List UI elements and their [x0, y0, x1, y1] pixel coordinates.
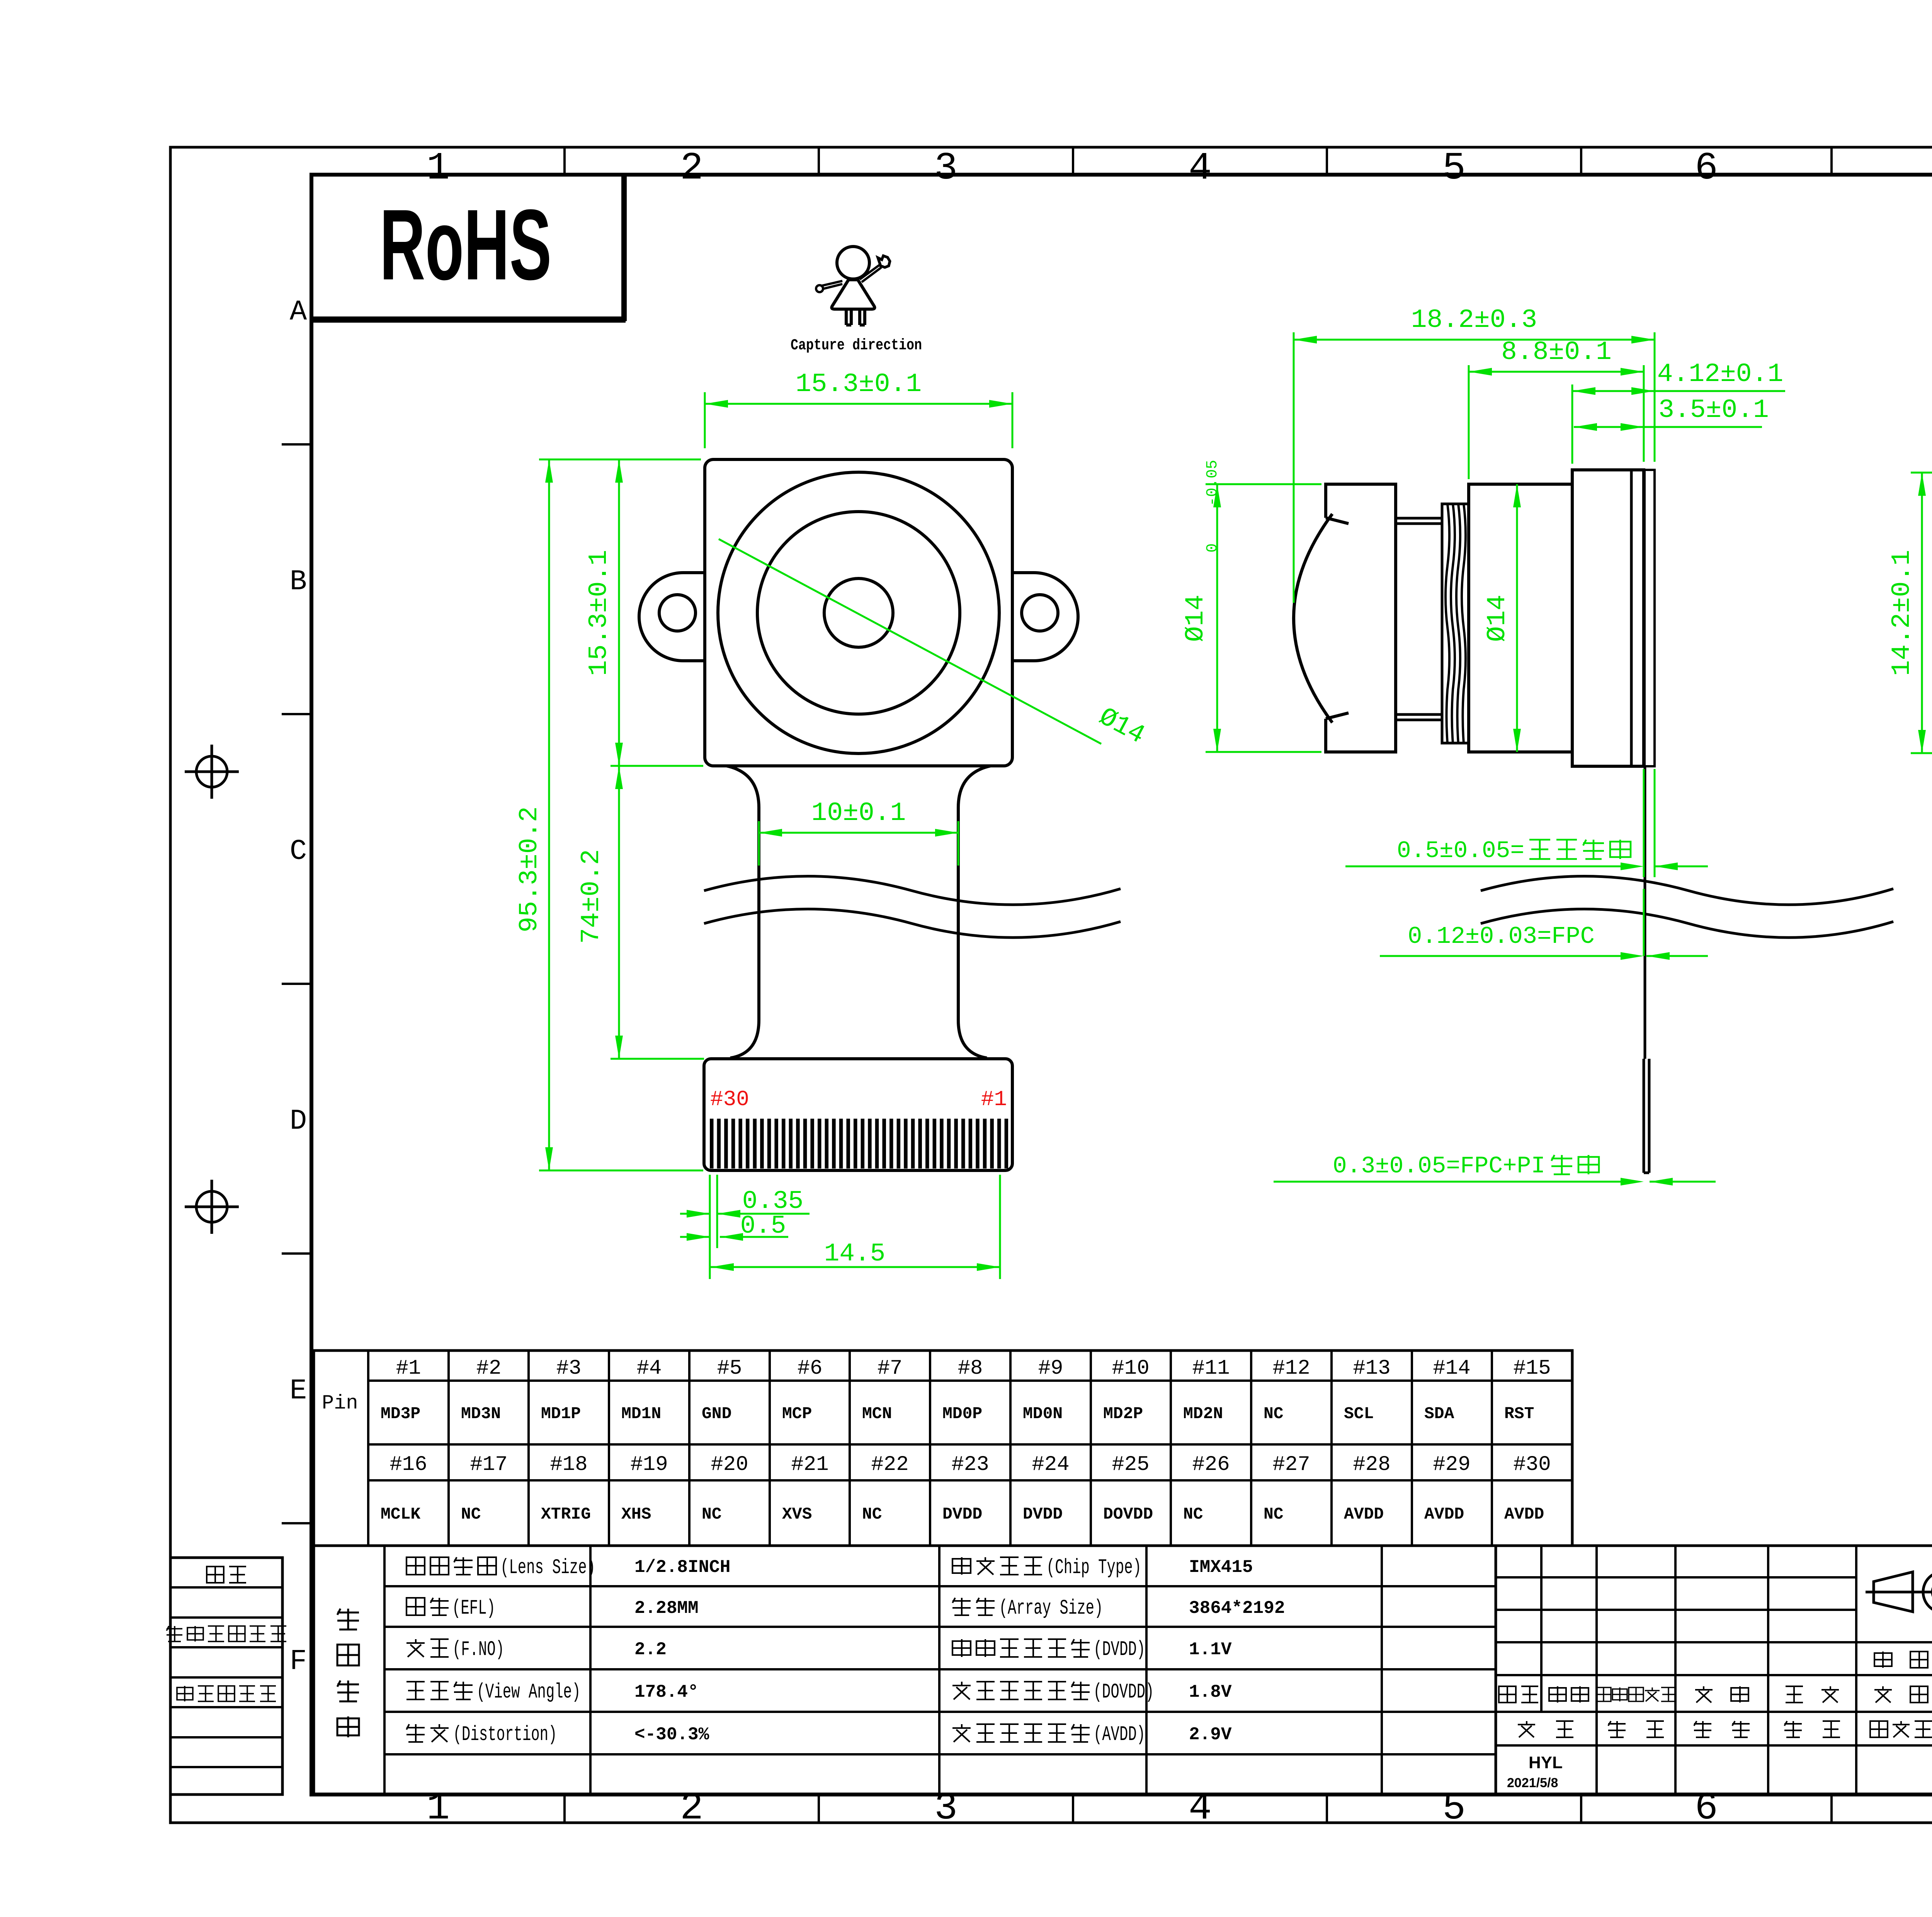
svg-text:6: 6 [1695, 147, 1718, 191]
svg-text:#6: #6 [798, 1357, 823, 1380]
svg-text:MD0P: MD0P [942, 1404, 982, 1423]
svg-text:(F.NO): (F.NO) [452, 1638, 504, 1662]
svg-text:#1: #1 [396, 1357, 421, 1380]
svg-text:C: C [290, 835, 307, 868]
svg-text:18.2±0.3: 18.2±0.3 [1411, 305, 1537, 335]
svg-text:SDA: SDA [1424, 1404, 1454, 1423]
svg-text:8.8±0.1: 8.8±0.1 [1501, 337, 1612, 367]
svg-text:<-30.3%: <-30.3% [634, 1725, 709, 1745]
svg-text:0.3±0.05=FPC+PI: 0.3±0.05=FPC+PI [1333, 1153, 1545, 1180]
svg-text:#9: #9 [1038, 1357, 1063, 1380]
svg-text:NC: NC [1264, 1505, 1284, 1524]
svg-text:3864*2192: 3864*2192 [1189, 1598, 1285, 1618]
svg-text:15.3±0.1: 15.3±0.1 [584, 550, 614, 676]
svg-text:B: B [290, 566, 307, 598]
svg-text:#15: #15 [1513, 1357, 1551, 1380]
svg-text:2.28MM: 2.28MM [634, 1598, 699, 1618]
svg-text:IMX415: IMX415 [1189, 1557, 1253, 1577]
svg-text:Ø14: Ø14 [1483, 595, 1512, 642]
svg-text:1.8V: 1.8V [1189, 1682, 1232, 1702]
svg-text:MD3N: MD3N [461, 1404, 501, 1423]
svg-text:A: A [290, 296, 307, 328]
svg-text:NC: NC [862, 1505, 882, 1524]
svg-text:RST: RST [1504, 1404, 1534, 1423]
svg-text:#27: #27 [1272, 1453, 1310, 1476]
svg-text:#25: #25 [1112, 1453, 1149, 1476]
svg-text:#22: #22 [871, 1453, 908, 1476]
svg-text:#1: #1 [981, 1087, 1007, 1112]
svg-text:#2: #2 [476, 1357, 502, 1380]
svg-text:DOVDD: DOVDD [1103, 1505, 1153, 1524]
svg-text:#17: #17 [470, 1453, 507, 1476]
svg-text:(Distortion): (Distortion) [453, 1723, 557, 1747]
svg-text:XVS: XVS [782, 1505, 812, 1524]
svg-text:Ø14: Ø14 [1094, 702, 1150, 750]
svg-text:#10: #10 [1112, 1357, 1149, 1380]
svg-text:#14: #14 [1433, 1357, 1470, 1380]
svg-text:3.5±0.1: 3.5±0.1 [1658, 395, 1769, 425]
svg-text:HYL: HYL [1529, 1753, 1563, 1772]
svg-text:#7: #7 [878, 1357, 903, 1380]
svg-text:Pin: Pin [322, 1392, 358, 1415]
svg-text:#12: #12 [1272, 1357, 1310, 1380]
svg-text:10±0.1: 10±0.1 [811, 798, 906, 828]
svg-text:#23: #23 [951, 1453, 989, 1476]
svg-text:(View Angle): (View Angle) [477, 1681, 581, 1704]
svg-text:#3: #3 [556, 1357, 582, 1380]
svg-text:#20: #20 [711, 1453, 748, 1476]
svg-text:(DOVDD): (DOVDD) [1094, 1681, 1154, 1704]
svg-text:Capture direction: Capture direction [791, 337, 922, 354]
svg-text:#18: #18 [550, 1453, 587, 1476]
svg-text:(Array Size): (Array Size) [999, 1597, 1103, 1620]
svg-text:0.5: 0.5 [740, 1211, 786, 1240]
svg-text:XTRIG: XTRIG [541, 1505, 591, 1524]
svg-text:SCL: SCL [1344, 1404, 1374, 1423]
svg-text:#26: #26 [1192, 1453, 1230, 1476]
svg-text:(Chip Type): (Chip Type) [1046, 1556, 1141, 1580]
svg-text:MD3P: MD3P [381, 1404, 420, 1423]
svg-text:#13: #13 [1353, 1357, 1390, 1380]
svg-text:(AVDD): (AVDD) [1094, 1723, 1145, 1747]
svg-text:0.5±0.05=: 0.5±0.05= [1397, 838, 1524, 864]
svg-text:F: F [290, 1645, 307, 1678]
svg-text:14.5: 14.5 [824, 1239, 885, 1268]
svg-text:-0.05: -0.05 [1204, 460, 1221, 506]
svg-text:GND: GND [702, 1404, 731, 1423]
svg-text:#30: #30 [710, 1087, 749, 1112]
svg-text:1: 1 [427, 147, 450, 191]
svg-text:MD2P: MD2P [1103, 1404, 1143, 1423]
svg-text:#4: #4 [637, 1357, 662, 1380]
svg-text:DVDD: DVDD [942, 1505, 982, 1524]
svg-text:AVDD: AVDD [1504, 1505, 1544, 1524]
svg-text:3: 3 [934, 147, 957, 191]
svg-text:MCN: MCN [862, 1404, 892, 1423]
svg-text:#30: #30 [1513, 1453, 1551, 1476]
svg-text:MD2N: MD2N [1183, 1404, 1223, 1423]
svg-text:178.4°: 178.4° [634, 1682, 699, 1702]
svg-text:(EFL): (EFL) [452, 1597, 495, 1620]
svg-text:DVDD: DVDD [1023, 1505, 1063, 1524]
svg-text:#19: #19 [630, 1453, 668, 1476]
svg-text:(Lens Size): (Lens Size) [500, 1556, 595, 1580]
svg-text:NC: NC [702, 1505, 722, 1524]
svg-text:#5: #5 [717, 1357, 742, 1380]
svg-text:1/2.8INCH: 1/2.8INCH [634, 1557, 730, 1577]
svg-text:95.3±0.2: 95.3±0.2 [515, 806, 544, 932]
svg-text:4: 4 [1189, 147, 1212, 191]
svg-text:0: 0 [1204, 543, 1221, 553]
svg-text:2021/5/8: 2021/5/8 [1507, 1776, 1558, 1790]
svg-text:AVDD: AVDD [1344, 1505, 1384, 1524]
svg-text:(DVDD): (DVDD) [1094, 1638, 1145, 1662]
svg-text:#29: #29 [1433, 1453, 1470, 1476]
svg-text:MD0N: MD0N [1023, 1404, 1063, 1423]
svg-text:2: 2 [680, 147, 703, 191]
svg-text:15.3±0.1: 15.3±0.1 [796, 369, 922, 399]
svg-text:E: E [290, 1375, 307, 1407]
svg-text:#28: #28 [1353, 1453, 1390, 1476]
svg-text:#21: #21 [791, 1453, 828, 1476]
svg-text:NC: NC [1183, 1505, 1203, 1524]
svg-text:#11: #11 [1192, 1357, 1230, 1380]
svg-text:0.12±0.03=FPC: 0.12±0.03=FPC [1408, 923, 1595, 950]
svg-text:#24: #24 [1032, 1453, 1069, 1476]
svg-text:1.1V: 1.1V [1189, 1640, 1232, 1660]
svg-text:5: 5 [1442, 147, 1466, 191]
svg-text:MD1P: MD1P [541, 1404, 581, 1423]
svg-text:#8: #8 [958, 1357, 983, 1380]
svg-text:2.9V: 2.9V [1189, 1725, 1232, 1745]
svg-text:Ø14: Ø14 [1181, 595, 1211, 642]
svg-text:MCLK: MCLK [381, 1505, 420, 1524]
svg-text:MCP: MCP [782, 1404, 812, 1423]
svg-text:RoHS: RoHS [380, 189, 552, 301]
svg-text:AVDD: AVDD [1424, 1505, 1464, 1524]
svg-text:2.2: 2.2 [634, 1640, 667, 1660]
svg-text:4.12±0.1: 4.12±0.1 [1657, 359, 1783, 389]
svg-text:74±0.2: 74±0.2 [577, 849, 606, 944]
svg-text:MD1N: MD1N [621, 1404, 661, 1423]
svg-text:XHS: XHS [621, 1505, 651, 1524]
svg-text:14.2±0.1: 14.2±0.1 [1887, 550, 1917, 676]
svg-text:NC: NC [461, 1505, 481, 1524]
svg-text:#16: #16 [389, 1453, 427, 1476]
svg-text:NC: NC [1264, 1404, 1284, 1423]
svg-text:D: D [290, 1105, 307, 1138]
